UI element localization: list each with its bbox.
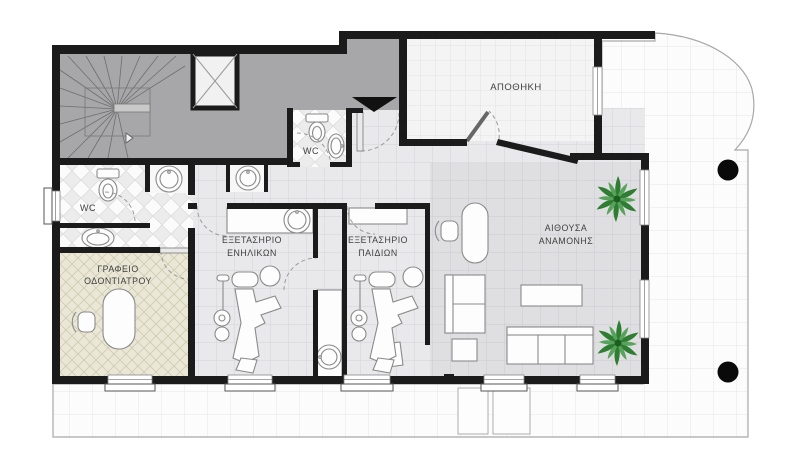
window	[484, 375, 524, 384]
floor-plan-canvas: ΑΠΟΘΗΚΗ WC WC ΓΡΑΦΕΙΟ ΟΔΟΝΤΙΑΤΡΟΥ ΕΞΕΤΑΣ…	[0, 0, 800, 476]
storage-room-label: ΑΠΟΘΗΚΗ	[490, 82, 542, 93]
structural-column	[718, 362, 739, 383]
exam-children-label-line2: ΠΑΙΔΙΩΝ	[358, 248, 397, 258]
window	[640, 170, 649, 225]
window	[344, 375, 390, 384]
window	[593, 67, 602, 115]
office-desk	[103, 289, 135, 349]
waiting-room-label-line1: ΑΙΘΟΥΣΑ	[545, 223, 587, 233]
round-sink	[236, 166, 260, 190]
doctor-stool	[403, 267, 423, 287]
dentist-office-label-line2: ΟΔΟΝΤΙΑΤΡΟΥ	[84, 276, 152, 286]
doctor-stool	[260, 266, 280, 286]
sofa-three-seat	[507, 327, 593, 364]
counter-sink	[317, 345, 341, 369]
toilet	[97, 169, 119, 201]
balcony-planter	[493, 388, 530, 434]
elevator	[193, 54, 237, 108]
exam-adults-label-line1: ΕΞΕΤΑΣΗΡΙΟ	[222, 235, 282, 245]
waiting-room-label-line2: ΑΝΑΜΟΝΗΣ	[539, 236, 593, 246]
side-table	[452, 339, 477, 361]
wc-office-label: WC	[80, 203, 96, 213]
wall-sink	[82, 228, 114, 248]
exam-children-label-line1: ΕΞΕΤΑΣΗΡΙΟ	[348, 235, 408, 245]
window	[640, 280, 649, 338]
coffee-table	[521, 285, 582, 306]
floor-plan-svg: ΑΠΟΘΗΚΗ WC WC ΓΡΑΦΕΙΟ ΟΔΟΝΤΙΑΤΡΟΥ ΕΞΕΤΑΣ…	[0, 0, 800, 476]
balcony-planter	[458, 388, 488, 434]
sofa-two-seat	[445, 275, 485, 333]
window	[228, 375, 272, 384]
counter-sink	[284, 207, 310, 233]
office-door-leaf	[160, 248, 189, 253]
round-sink	[156, 166, 182, 192]
dentist-office-label-line1: ΓΡΑΦΕΙΟ	[97, 264, 138, 274]
wall-sink	[328, 134, 344, 158]
structural-column	[718, 160, 739, 181]
wc-entrance-label: WC	[303, 146, 319, 156]
entry-door-leaf	[357, 112, 363, 151]
reception-desk	[462, 203, 488, 263]
exam-adults-label-line2: ΕΝΗΛΙΚΩΝ	[227, 248, 277, 258]
window	[580, 375, 615, 384]
counter	[349, 208, 407, 224]
window	[108, 375, 152, 384]
